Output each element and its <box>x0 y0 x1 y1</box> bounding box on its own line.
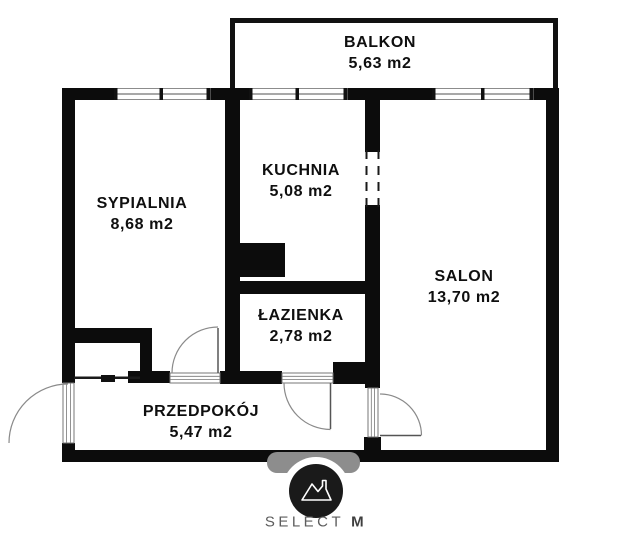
room-name: BALKON <box>344 32 416 53</box>
door-salon <box>368 388 422 437</box>
door-entrance <box>9 383 74 443</box>
door-bathroom <box>282 373 333 430</box>
kitchen-salon-wall-upper <box>365 88 380 152</box>
kitchen-salon-wall-lower <box>365 205 380 388</box>
room-area: 5,63 m2 <box>344 53 416 74</box>
floor-plan-drawing <box>0 0 632 540</box>
room-area: 5,47 m2 <box>143 422 259 443</box>
door-swing-arc <box>172 327 218 373</box>
brand-name: SELECT <box>265 514 344 531</box>
room-name: SYPIALNIA <box>97 193 188 214</box>
door-frame <box>282 373 333 383</box>
balcony-wall-left <box>230 18 235 90</box>
balcony-wall-top <box>230 18 558 23</box>
room-area: 8,68 m2 <box>97 214 188 235</box>
bathroom-top-wall <box>225 281 380 294</box>
logo-circle <box>289 464 343 518</box>
brand-suffix: M <box>351 514 367 531</box>
room-label-salon: SALON 13,70 m2 <box>428 266 500 308</box>
right-wall <box>546 88 559 462</box>
room-area: 2,78 m2 <box>258 326 344 347</box>
window-salon <box>432 88 533 100</box>
door-frame <box>63 383 74 443</box>
door-swing-arc <box>9 384 68 443</box>
room-label-lazienka: ŁAZIENKA 2,78 m2 <box>258 305 344 347</box>
room-label-sypialnia: SYPIALNIA 8,68 m2 <box>97 193 188 235</box>
room-name: PRZEDPOKÓJ <box>143 401 259 422</box>
bathroom-bottom-left-pier <box>220 371 282 384</box>
door-frame <box>368 388 378 437</box>
room-label-przedpokoj: PRZEDPOKÓJ 5,47 m2 <box>143 401 259 443</box>
window-kitchen <box>249 88 347 100</box>
room-label-balkon: BALKON 5,63 m2 <box>344 32 416 74</box>
top-wall-segment <box>210 88 250 100</box>
room-area: 13,70 m2 <box>428 287 500 308</box>
kitchen-salon-dashed-opening <box>367 150 379 207</box>
room-name: SALON <box>428 266 500 287</box>
room-name: ŁAZIENKA <box>258 305 344 326</box>
bedroom-bottom-wall <box>62 328 152 343</box>
kitchen-duct-block <box>237 243 285 277</box>
door-swing-arc <box>380 394 422 436</box>
brand-wordmark: SELECTM <box>265 514 367 531</box>
room-name: KUCHNIA <box>262 160 340 181</box>
door-bedroom <box>170 327 220 383</box>
wardrobe-handle-tick <box>101 375 115 382</box>
top-wall-balcony-door-segment <box>347 88 433 100</box>
bedroom-kitchen-wall <box>225 100 240 372</box>
door-swing-arc <box>284 383 331 430</box>
room-area: 5,08 m2 <box>262 181 340 202</box>
salon-door-pier <box>364 437 381 462</box>
balcony-wall-right <box>553 18 558 90</box>
floor-plan: BALKON 5,63 m2 SYPIALNIA 8,68 m2 KUCHNIA… <box>0 0 632 540</box>
door-frame <box>170 373 220 383</box>
room-label-kuchnia: KUCHNIA 5,08 m2 <box>262 160 340 202</box>
window-bedroom <box>114 88 210 100</box>
